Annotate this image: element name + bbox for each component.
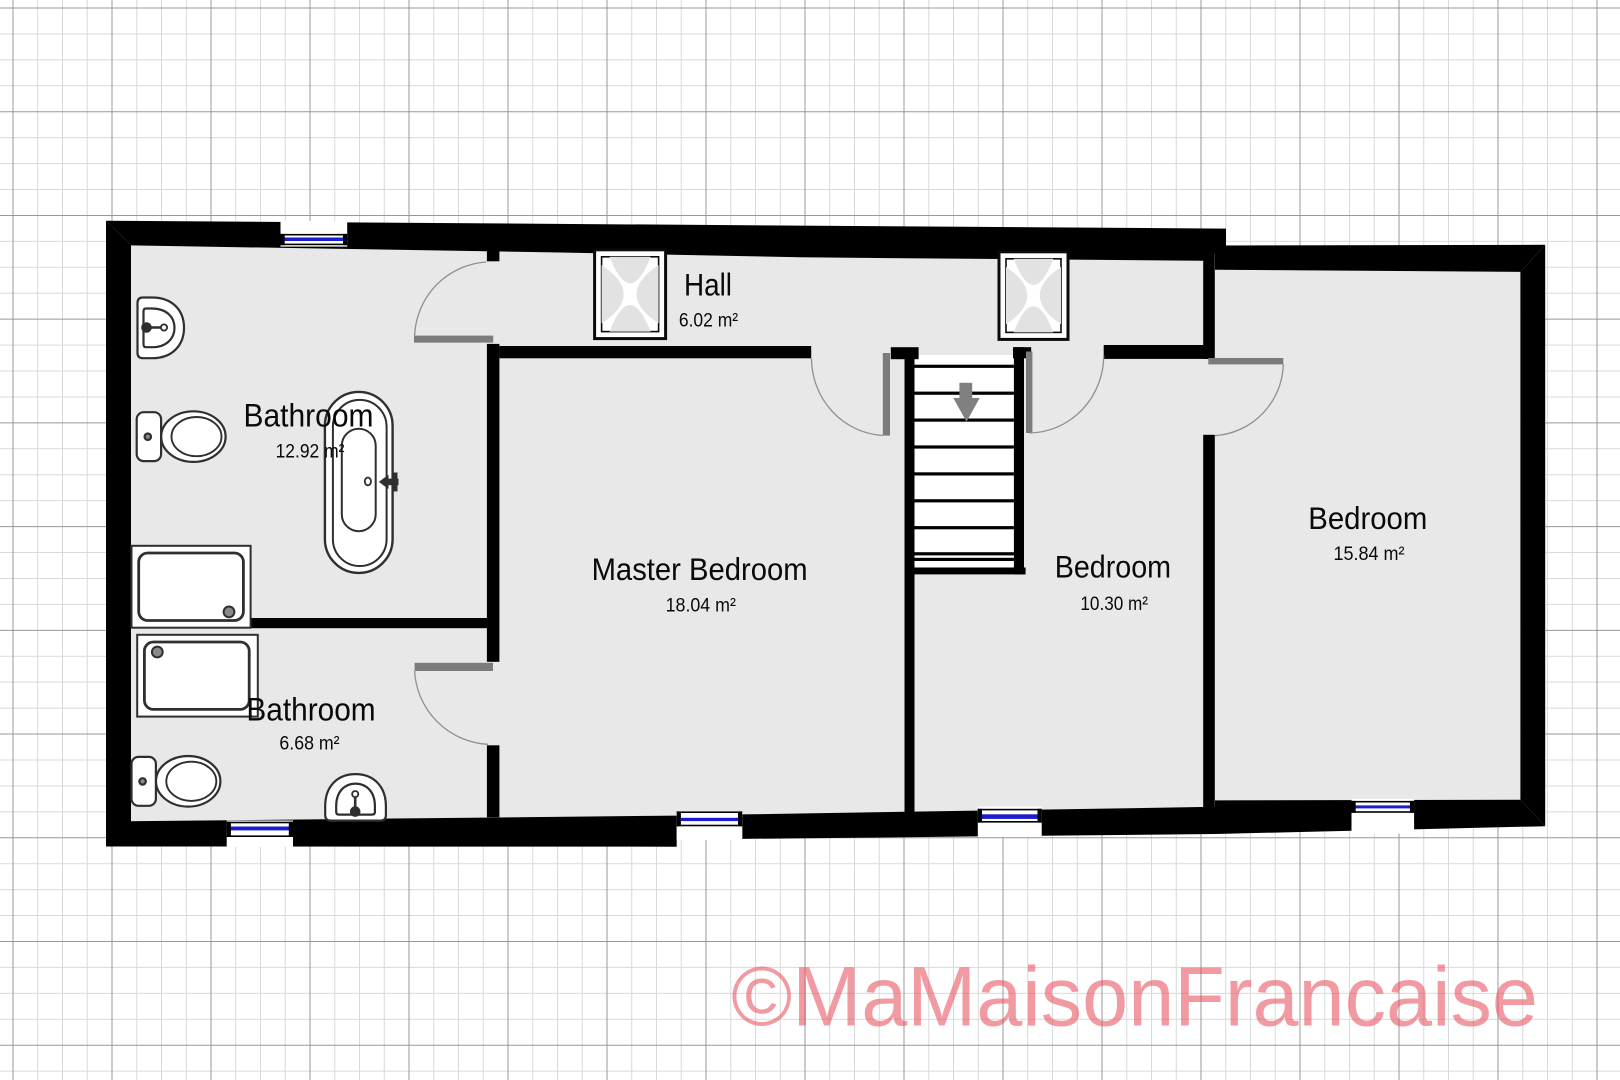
svg-text:Hall: Hall [684, 266, 732, 302]
svg-text:Bathroom: Bathroom [244, 398, 374, 434]
svg-text:10.30 m²: 10.30 m² [1080, 594, 1148, 615]
svg-text:12.92 m²: 12.92 m² [276, 441, 345, 463]
svg-text:15.84 m²: 15.84 m² [1333, 544, 1404, 565]
svg-text:18.04 m²: 18.04 m² [666, 596, 736, 617]
svg-text:Bathroom: Bathroom [246, 692, 375, 728]
svg-text:Bedroom: Bedroom [1055, 549, 1171, 585]
svg-text:6.68 m²: 6.68 m² [279, 733, 340, 755]
svg-text:6.02 m²: 6.02 m² [679, 310, 739, 332]
svg-text:Master Bedroom: Master Bedroom [592, 551, 808, 587]
svg-text:Bedroom: Bedroom [1308, 500, 1427, 536]
svg-text:©MaMaisonFrancaise: ©MaMaisonFrancaise [731, 949, 1538, 1043]
